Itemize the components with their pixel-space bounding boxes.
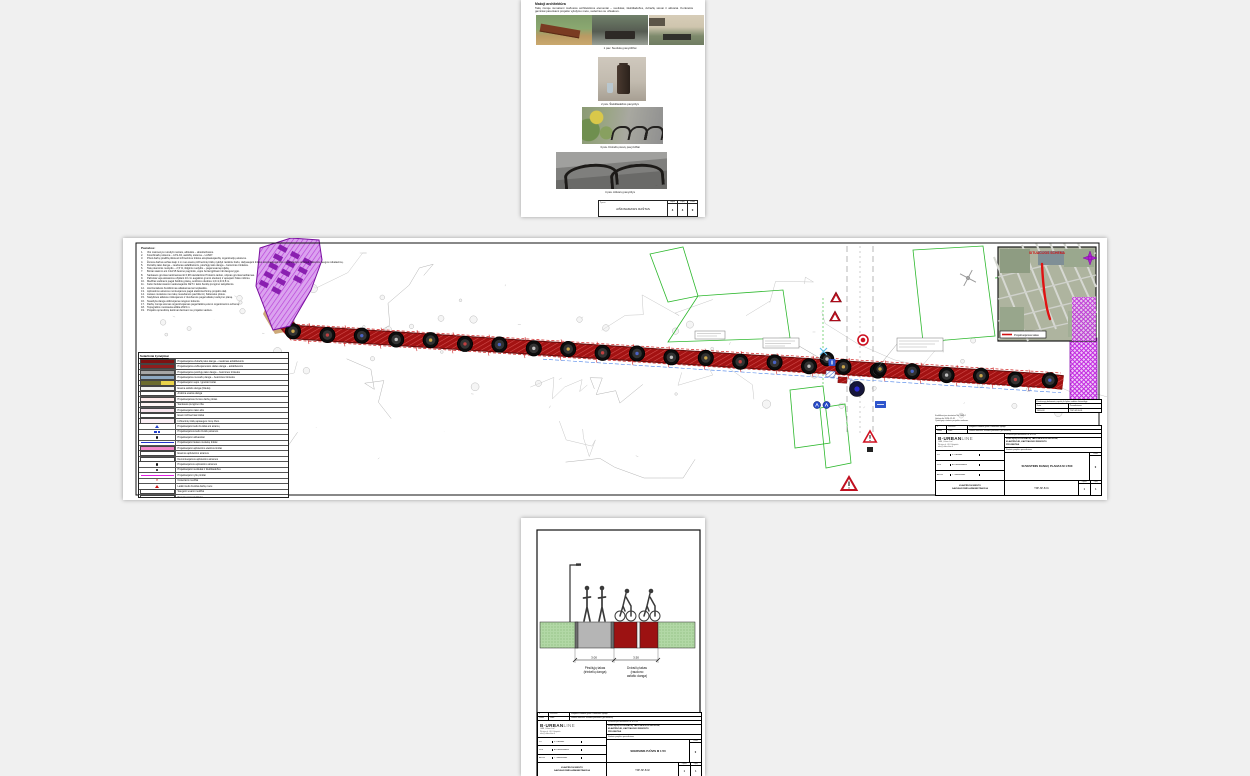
legend-swatch: [139, 359, 176, 363]
station-tick: [452, 349, 453, 353]
bike-asphalt-left: [614, 622, 637, 648]
survey-tick: [262, 333, 264, 334]
legend-swatch: [139, 375, 176, 379]
tree-center: [291, 330, 294, 333]
tree-center: [463, 342, 466, 345]
legend-swatch: [139, 468, 176, 472]
tb-roles: PVV. Urbonas PDVA. Kazlauskienė ARCHT. J…: [538, 738, 606, 762]
notes-list: 1.Visi matmenys nurodyti metrais, altitu…: [141, 251, 373, 312]
survey-tick: [549, 406, 551, 409]
survey-polyline: [347, 359, 392, 419]
legend-swatch: [139, 451, 176, 455]
survey-tick: [636, 456, 639, 457]
tb-project-name: PĖSČIŲJŲ IR DVIRAČIŲ TAKO ALĖJOS GATVĖJE…: [607, 725, 701, 736]
tb-roles: PVV. Urbonas PDVA. Kazlauskienė ARCHT. J…: [936, 451, 1004, 480]
tree-center: [979, 374, 982, 377]
legend-label: Ardoma esama danga: [176, 392, 288, 395]
survey-tree: [363, 325, 366, 328]
legend-label: Projektuojami suoliukai ir šiukšliadėžės: [176, 468, 288, 471]
legend-label: Sankasos įrengimo riba: [176, 403, 288, 406]
legend-swatch: [139, 413, 176, 417]
tb-document-code: TDP-SP-B.02: [607, 763, 678, 776]
tree-center: [825, 357, 828, 360]
photo-bike-racks: [582, 107, 663, 144]
tb-data-header: Data: [549, 717, 570, 720]
footer-doc-cell: Žymuo AIŠKINAMASIS RAŠTAS: [599, 201, 667, 216]
tree-center: [739, 360, 742, 363]
survey-tick: [863, 407, 865, 408]
green-strip-left: [540, 622, 577, 648]
legend-label: Projektuojamos kelio ženklų atramos: [176, 430, 288, 433]
legend-label: Esama asfalto danga (išlieka): [176, 387, 288, 390]
note-text: Projekto sprendinių keitimai derinami su…: [147, 309, 373, 312]
rail-arc: [609, 162, 665, 189]
tb-document-code: TDP-SP-B.01: [1005, 481, 1078, 495]
light-pole: [570, 563, 581, 622]
station-tick: [776, 370, 777, 374]
attestation-lines: Kvalifikacijos atestatas Nr. 26814 Galio…: [935, 415, 1031, 423]
legend-label: Projektuojami lietaus nuotekų tinklai: [176, 441, 288, 444]
legend-swatch: [139, 484, 176, 488]
tree-center: [601, 351, 604, 354]
survey-polyline: [746, 277, 814, 316]
footer-mark-label: Žymuo: [600, 202, 606, 204]
mini-table-value: 2024-03: [1036, 409, 1069, 413]
survey-tick: [173, 316, 175, 317]
tree-center: [704, 356, 707, 359]
tb-data-header: Data: [947, 430, 968, 433]
footer-col-lapas: Lapas 4: [667, 201, 677, 216]
company-logo: B·URBANLINE: [538, 721, 606, 729]
survey-tick: [699, 297, 700, 298]
survey-tree: [535, 380, 541, 386]
survey-tree: [603, 325, 610, 332]
revision-mini-table: Privalomųjų dokumentų sąrašą žr. bylos s…: [1035, 399, 1102, 413]
legend-label: Inžinerinių tinklų apsaugos zonų ribos: [176, 420, 288, 423]
dimension-line: [573, 648, 660, 663]
photo-caption-3: 3 pav. Dviračių stovų pavyzdžiai: [536, 145, 704, 149]
photo-trash-bin: [598, 57, 646, 101]
bin-body: [617, 65, 630, 94]
legend-label: Projektuojami apšvietimo elektros tinkla…: [176, 447, 288, 450]
legend-swatch: [139, 495, 176, 498]
legend-swatch: [139, 462, 176, 466]
tree-center: [670, 356, 673, 359]
station-tick: [920, 380, 921, 384]
survey-tree: [440, 351, 443, 354]
tree-center: [1014, 378, 1017, 381]
pedestrian-figure: [599, 590, 606, 621]
tb-sheet-cells: Lapas1 Lapų1: [678, 763, 701, 776]
legend-swatch: ✕: [139, 479, 176, 483]
tree-center: [1048, 378, 1051, 381]
tree-center: [854, 386, 859, 391]
map-title: SITUACIJOS SCHEMA: [1029, 251, 1066, 255]
footer-col-value: 0: [688, 204, 697, 216]
legend-label: Projektuojama pėsčiųjų tako danga – beto…: [176, 371, 288, 374]
survey-tree: [577, 317, 583, 323]
legend-label: Laikini kelio ženklai darbų metu: [176, 485, 288, 488]
tb-rev: 0: [538, 713, 549, 716]
legend-label: Nukertami medžiai: [176, 479, 288, 482]
legend-label: Projektuojami kelio ženklai ant atramų: [176, 425, 288, 428]
survey-polyline: [559, 421, 595, 457]
legend-label: Projektuojamas žemės darbų plotas: [176, 398, 288, 401]
legend-label: Esami inžineriniai tinklai: [176, 414, 288, 417]
map-legend-text: Projektuojamas takas: [1014, 333, 1039, 337]
legend-swatch: [139, 408, 176, 412]
survey-polyline: [602, 295, 713, 330]
tree-center: [498, 343, 501, 346]
pedestrian-pavement: [577, 622, 614, 648]
tb-rev-note: Statybos leidimui gauti ir darbams vykdy…: [570, 713, 701, 716]
people-figures: [584, 586, 661, 621]
section-band: [540, 622, 695, 648]
station-tick: [416, 347, 417, 351]
cyclist-figure: [620, 594, 631, 617]
situation-map-inset: SITUACIJOS SCHEMA Projektuojamas takas: [994, 243, 1097, 341]
tree-center: [429, 338, 432, 341]
tree-center: [567, 347, 570, 350]
mini-table-header: Data: [1036, 404, 1069, 408]
cyclist-figure: [644, 594, 655, 617]
tb-status-header: Laidos statusas. Keitimo priežastis (jei…: [968, 430, 1101, 433]
dim-value-left: 3.00: [591, 656, 597, 660]
map-purple-overlap: [1072, 297, 1096, 341]
blue-round-sign: [813, 401, 820, 408]
survey-tree: [187, 327, 191, 331]
survey-tree: [961, 359, 965, 363]
legend-label: Projektuojama nuovažų danga – betoninės …: [176, 376, 288, 379]
legend-swatch: [139, 446, 176, 450]
station-tick: [956, 382, 957, 386]
survey-tree: [370, 357, 374, 361]
mini-table-header: Pavadinimas: [1069, 404, 1101, 408]
tb-rev-date: 2024-03: [947, 426, 968, 429]
survey-tree: [471, 383, 479, 391]
company-address: UAB „Urban line“Šilutės pl. 48, Klaipėda…: [936, 441, 1004, 451]
survey-tick: [378, 458, 380, 459]
survey-tick: [729, 342, 730, 345]
page-cross-section: 3.00 3.50 Pėsčiųjų takas(trinkelių danga…: [521, 518, 705, 776]
page1-paragraph: Takų zonoje numatomi mažosios architektū…: [535, 7, 693, 14]
tb-project-name: PĖSČIŲJŲ IR DVIRAČIŲ TAKO ALĖJOS GATVĖJE…: [1005, 438, 1101, 449]
survey-tree: [470, 316, 477, 323]
survey-polyline: [590, 378, 643, 403]
cyclist-figure: [649, 589, 654, 594]
tree-center: [842, 365, 845, 368]
legend-swatch: [139, 392, 176, 396]
legend-swatch: [139, 397, 176, 401]
bench-shape: [605, 31, 635, 39]
photo-bench-2: [592, 15, 648, 45]
legend-swatch: [139, 403, 176, 407]
tb-status-header: Laidos statusas. Keitimo priežastis (jei…: [570, 717, 701, 720]
station-tick: [380, 345, 381, 349]
tb-laida-header: Laida: [538, 717, 549, 720]
survey-tree: [409, 324, 414, 329]
notes-block: Pastabos: 1.Visi matmenys nurodyti metra…: [141, 246, 373, 312]
legend-label: Projektuojami atitvarėliai: [176, 436, 288, 439]
legend-swatch: [139, 386, 176, 390]
survey-cross-marker: [956, 266, 980, 290]
traffic-signs: [813, 292, 886, 490]
footer-col-value: 4: [678, 204, 687, 216]
legend-label: Demontuojamos apšvietimo atramos: [176, 458, 288, 461]
survey-tree: [438, 315, 444, 321]
cup-shape: [607, 83, 613, 93]
pedestrian-figure: [584, 590, 591, 621]
photo-bench-1: [536, 15, 592, 45]
survey-tick: [559, 378, 562, 380]
legend-row: Projektuojami želdiniai: [139, 495, 288, 498]
tb-drawing-title: SUVESTINIS DANGŲ PLANAS M 1:500: [1005, 453, 1089, 480]
station-tick: [596, 359, 597, 363]
bench-shape: [540, 24, 581, 39]
survey-tree: [675, 393, 678, 396]
survey-tree: [762, 400, 770, 408]
survey-tree: [459, 299, 462, 302]
company-logo: B·URBANLINE: [936, 434, 1004, 442]
station-tick: [308, 340, 309, 344]
blue-round-sign: [823, 401, 830, 408]
sign-inner: [861, 338, 866, 343]
tree-center: [395, 338, 398, 341]
legend-label: Projektuojamos apšvietimo atramos: [176, 463, 288, 466]
legend-swatch: [139, 419, 176, 423]
survey-tree: [380, 295, 385, 300]
tree-center: [532, 347, 535, 350]
legend-label: Esamos apšvietimo atramos: [176, 452, 288, 455]
curb-left: [575, 622, 578, 648]
dim-value-right: 3.50: [633, 656, 639, 660]
legend-label: Saugomi esami medžiai: [176, 490, 288, 493]
cyclist-figure: [625, 589, 630, 594]
legend-label: Projektuojama dviračių tako danga – raud…: [176, 360, 288, 363]
tb-rev-date: 2024-03: [549, 713, 570, 716]
page-explanatory-note: Mažoji architektūra Takų zonoje numatomi…: [521, 0, 705, 217]
legend-swatch: [139, 435, 176, 439]
black-marker: [867, 447, 873, 452]
footer-doc-title: AIŠKINAMASIS RAŠTAS: [616, 207, 650, 211]
survey-tick: [964, 402, 965, 403]
legend-swatch: [139, 457, 176, 461]
company-address: UAB „Urban line“Šilutės pl. 48, Klaipėda…: [538, 728, 606, 738]
survey-tree: [971, 338, 976, 343]
divider-strip: [637, 622, 640, 648]
survey-tree: [160, 320, 166, 326]
survey-tree: [303, 367, 310, 374]
tb-laida-header: Laida: [936, 430, 947, 433]
map-patch: [1000, 249, 1030, 273]
tree-center: [773, 361, 776, 364]
tree-center: [360, 334, 363, 337]
survey-tree: [1012, 403, 1017, 408]
legend-label: Projektuojami želdiniai: [176, 496, 288, 498]
footer-col-laida: Laida 0: [687, 201, 697, 216]
tb-rev-note: Statybos leidimui gauti ir darbams vykdy…: [968, 426, 1101, 429]
building-window: [649, 18, 659, 26]
tb-sheet-cells: Lapas1 Lapų1: [1078, 481, 1101, 495]
tree-center: [326, 333, 329, 336]
notes-title: Pastabos:: [141, 246, 373, 250]
legend-label: Projektuojama važiuojamosios dalies dang…: [176, 365, 288, 368]
legend-swatch: [139, 490, 176, 494]
note-item: 19.Projekto sprendinių keitimai derinami…: [141, 309, 373, 312]
mini-table-value: TDP-SP-B.01: [1069, 409, 1101, 413]
footer-col-lapu: Lapų 4: [677, 201, 687, 216]
survey-tree: [686, 321, 693, 328]
title-block: 0 2024-03 Statybos leidimui gauti ir dar…: [537, 712, 702, 776]
sign-glyph: [831, 361, 832, 365]
section-label-right: Dviračių takas(raudonoasfalto danga): [619, 666, 655, 678]
legend-swatch: [139, 473, 176, 477]
legend-swatch: [139, 381, 176, 385]
page1-footer-block: Žymuo AIŠKINAMASIS RAŠTAS Lapas 4 Lapų 4…: [598, 200, 698, 217]
tb-laida-cell: Laida0: [1089, 453, 1101, 480]
survey-tree: [165, 333, 168, 336]
legend-table: Sutartiniai žymėjimai Projektuojama dvir…: [138, 352, 289, 498]
survey-tree: [711, 347, 714, 350]
legend-swatch: [139, 430, 176, 434]
tree-center: [911, 370, 914, 373]
title-block: 0 2024-03 Statybos leidimui gauti ir dar…: [935, 425, 1102, 496]
tree-center: [635, 352, 638, 355]
photo-bench-3: [649, 15, 704, 45]
legend-swatch: [139, 370, 176, 374]
legend-rows: Projektuojama dviračių tako danga – raud…: [139, 359, 288, 498]
tb-organization: KLAIPĖDOS MIESTOSAVIVALDYBĖS ADMINISTRAC…: [538, 763, 607, 776]
station-tick: [344, 342, 345, 346]
photo-bollard-rail: [556, 152, 667, 189]
bench-shape: [663, 34, 691, 40]
tb-rev: 0: [936, 426, 947, 429]
legend-label: Projektuojami ryšių tinklai: [176, 474, 288, 477]
attestation-line: Ypatingojo statinio projekto vadovas: [935, 420, 1031, 423]
legend-swatch: [139, 424, 176, 428]
survey-tree: [839, 403, 844, 408]
legend-label: Projektuojamo tako ašis: [176, 409, 288, 412]
legend-swatch: [139, 441, 176, 445]
tree-center: [878, 367, 881, 370]
section-label-left: Pėsčiųjų takas(trinkelių danga): [577, 666, 613, 674]
survey-polyline: [566, 458, 696, 478]
bike-asphalt-right: [640, 622, 658, 648]
photo-caption-1: 1 pav. Suoliukų pavyzdžiai: [536, 46, 704, 50]
tb-laida-cell: Laida0: [689, 740, 701, 762]
page-site-plan: SITUACIJOS SCHEMA Projektuojamas takas P…: [123, 238, 1107, 500]
green-strip-right: [658, 622, 695, 648]
tree-center: [807, 365, 810, 368]
curb-right: [611, 622, 614, 648]
photo-caption-2: 2 pav. Šiukšliadėžės pavyzdys: [536, 102, 704, 106]
tb-organization: KLAIPĖDOS MIESTOSAVIVALDYBĖS ADMINISTRAC…: [936, 481, 1005, 495]
legend-swatch: [139, 364, 176, 368]
tb-drawing-title: SKERSINIS PJŪVIS M 1:50: [607, 740, 689, 762]
document-viewer-canvas: Mažoji architektūra Takų zonoje numatomi…: [0, 0, 1250, 776]
tree-center: [945, 373, 948, 376]
legend-label: Projektuojami vejos / granito bortai: [176, 381, 288, 384]
footer-col-value: 4: [668, 204, 677, 216]
photo-caption-4: 4 pav. Atitvarų pavyzdys: [536, 190, 704, 194]
